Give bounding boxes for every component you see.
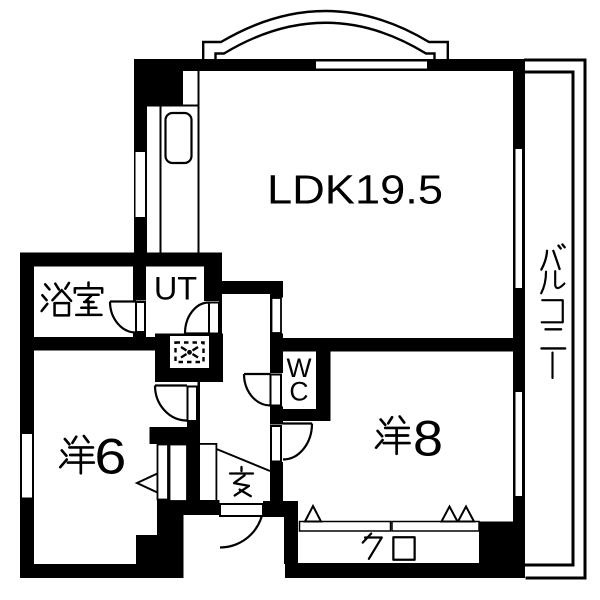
svg-text:C: C: [289, 377, 308, 407]
svg-text:LDK19.5: LDK19.5: [267, 166, 443, 212]
svg-text:6: 6: [94, 428, 126, 484]
svg-text:8: 8: [413, 410, 443, 466]
svg-text:UT: UT: [154, 270, 197, 306]
